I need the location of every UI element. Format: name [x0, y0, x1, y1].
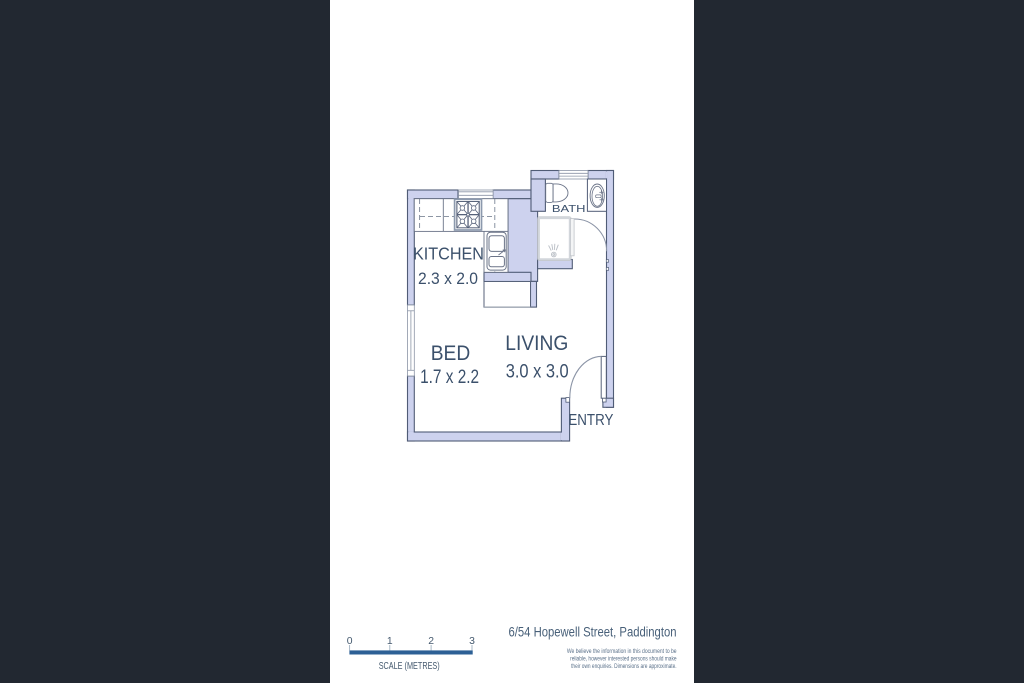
- svg-text:ENTRY: ENTRY: [568, 412, 613, 429]
- svg-text:We believe the information in: We believe the information in this docum…: [567, 648, 677, 655]
- svg-text:SCALE (METRES): SCALE (METRES): [379, 661, 440, 672]
- svg-text:LIVING: LIVING: [505, 332, 568, 355]
- svg-text:BED: BED: [431, 342, 471, 365]
- svg-text:BATH: BATH: [552, 204, 586, 215]
- svg-text:6/54 Hopewell Street, Paddingt: 6/54 Hopewell Street, Paddington: [509, 625, 677, 641]
- svg-text:reliable, however interested p: reliable, however interested persons sho…: [570, 656, 677, 663]
- svg-text:2.3 x 2.0: 2.3 x 2.0: [418, 269, 478, 288]
- svg-text:KITCHEN: KITCHEN: [413, 244, 484, 264]
- svg-text:their own enquiries. Dimension: their own enquiries. Dimensions are appr…: [571, 663, 677, 670]
- svg-text:1.7 x 2.2: 1.7 x 2.2: [420, 367, 479, 388]
- svg-text:3.0 x 3.0: 3.0 x 3.0: [506, 361, 569, 382]
